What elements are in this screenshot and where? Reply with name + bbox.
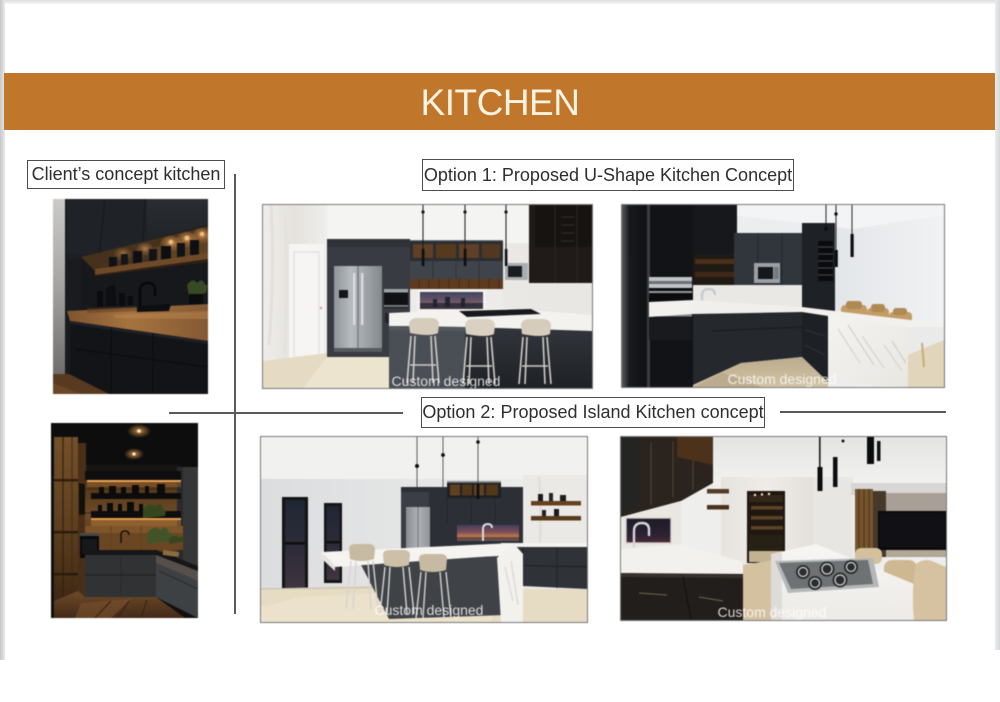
svg-text:Custom designed: Custom designed [375, 602, 484, 618]
svg-text:Custom designed: Custom designed [392, 373, 501, 388]
svg-text:Custom designed: Custom designed [728, 371, 837, 387]
svg-text:Custom designed: Custom designed [718, 604, 827, 620]
